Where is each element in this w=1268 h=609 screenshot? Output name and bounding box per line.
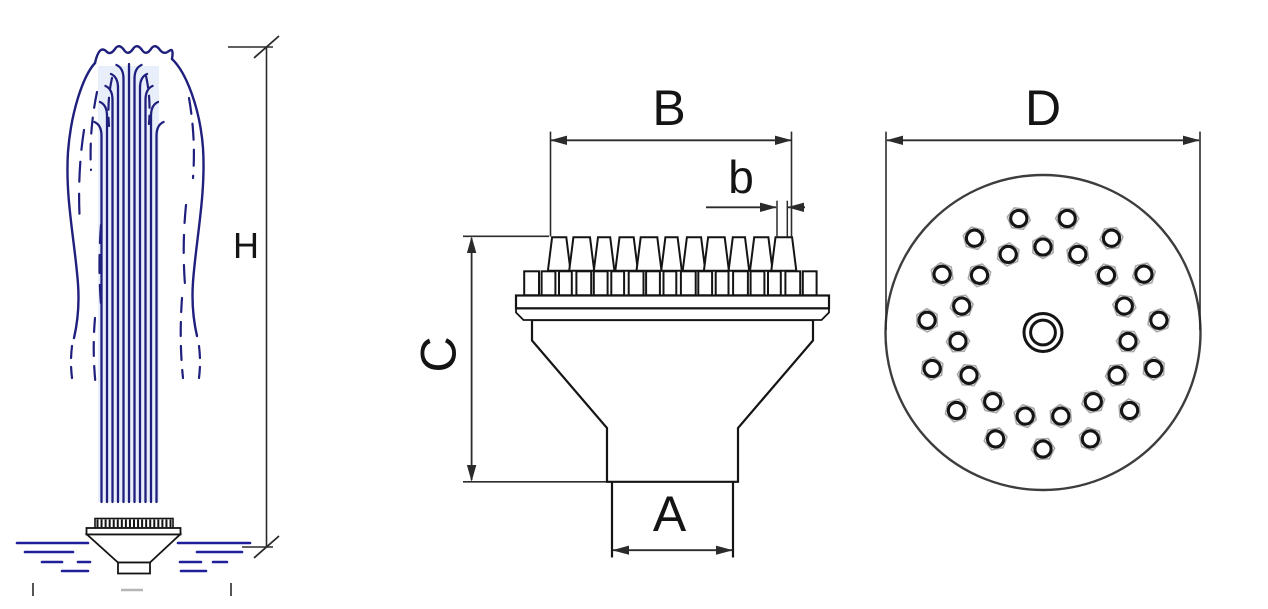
plan-nozzle-hole bbox=[1035, 441, 1051, 457]
plan-nozzle-hole bbox=[948, 402, 964, 418]
nozzle-tip bbox=[771, 237, 796, 270]
plan-nozzle-hole bbox=[966, 230, 982, 246]
nozzle-side-view: B b C A bbox=[411, 80, 830, 558]
nozzle-tip bbox=[729, 237, 750, 270]
dim-B: B bbox=[550, 80, 792, 237]
center-hole bbox=[1024, 314, 1062, 352]
technical-drawing: H B b bbox=[0, 0, 1268, 609]
dim-label-c: C bbox=[411, 336, 467, 372]
technical-drawing-canvas: H B b bbox=[0, 0, 1268, 609]
nozzle-tip bbox=[594, 237, 615, 270]
dim-label-h: H bbox=[233, 225, 259, 266]
nozzle-tip bbox=[569, 237, 594, 270]
plan-nozzle-hole bbox=[1122, 402, 1138, 418]
plan-nozzle-hole bbox=[1151, 312, 1167, 328]
nut-rect bbox=[542, 271, 556, 295]
plan-nozzle-hole bbox=[1103, 230, 1119, 246]
fountain-flange bbox=[87, 528, 181, 535]
dim-label-d: D bbox=[1025, 80, 1061, 136]
dim-label-b-upper: B bbox=[652, 80, 685, 136]
nozzle-tip bbox=[637, 237, 662, 270]
plan-nozzle-hole bbox=[1146, 360, 1162, 376]
jet-line bbox=[157, 122, 164, 502]
nut-rect bbox=[559, 271, 572, 295]
spray-envelope-left bbox=[67, 63, 95, 338]
funnel-body bbox=[532, 320, 813, 482]
nozzle-tip bbox=[704, 237, 729, 270]
dim-A: A bbox=[612, 486, 733, 555]
basin-edge-ticks bbox=[33, 583, 231, 596]
nut-rect bbox=[646, 271, 660, 295]
dim-label-a: A bbox=[653, 486, 687, 542]
nut-rect bbox=[629, 271, 644, 295]
nut-rect bbox=[716, 271, 729, 295]
nozzle-plan-view: D bbox=[886, 80, 1201, 490]
dim-H: H bbox=[228, 36, 279, 558]
spray-crest-wave bbox=[95, 46, 173, 63]
nut-rect bbox=[594, 271, 608, 295]
plan-nozzle-hole bbox=[988, 431, 1004, 447]
nozzle-tip bbox=[683, 237, 706, 270]
nozzle-tip bbox=[750, 237, 773, 270]
plan-nozzle-hole bbox=[1059, 210, 1075, 226]
plan-nozzle-hole bbox=[1098, 267, 1114, 283]
nozzle-tip bbox=[661, 237, 682, 270]
nut-rect bbox=[803, 271, 817, 295]
spray-envelope-right bbox=[172, 59, 204, 336]
dim-label-b-lower: b bbox=[728, 151, 754, 203]
fountain-nozzle-unit bbox=[87, 519, 181, 574]
plan-nozzle-hole bbox=[950, 333, 966, 349]
nut-rect bbox=[733, 271, 748, 295]
plan-nozzle-hole bbox=[1085, 394, 1101, 410]
nut-rect bbox=[751, 271, 765, 295]
flange-plate bbox=[516, 296, 829, 309]
plan-nozzle-hole bbox=[954, 298, 970, 314]
fountain-pipe bbox=[118, 563, 150, 574]
plan-nozzle-hole bbox=[1109, 367, 1125, 383]
nozzle-tip bbox=[615, 237, 638, 270]
plan-nozzle-hole bbox=[985, 394, 1001, 410]
flange-chamfer-strip bbox=[516, 308, 829, 320]
plan-nozzle-hole bbox=[934, 266, 950, 282]
fountain-funnel bbox=[87, 535, 180, 563]
nut-rect bbox=[664, 271, 677, 295]
plan-nozzle-hole bbox=[1017, 408, 1033, 424]
nut-rect bbox=[768, 271, 781, 295]
plan-nozzle-hole bbox=[971, 267, 987, 283]
plan-nozzle-hole bbox=[1000, 246, 1016, 262]
plan-nozzle-hole bbox=[1053, 408, 1069, 424]
nozzle-tip-row bbox=[548, 237, 796, 270]
nut-rect bbox=[681, 271, 696, 295]
plan-nozzle-hole bbox=[1011, 210, 1027, 226]
dim-b: b bbox=[706, 151, 805, 237]
plan-nozzle-hole bbox=[1120, 333, 1136, 349]
nut-rect bbox=[524, 271, 539, 295]
plan-nozzle-hole bbox=[1082, 431, 1098, 447]
plan-nozzle-hole bbox=[1136, 266, 1152, 282]
plan-nozzle-hole bbox=[919, 312, 935, 328]
plan-nozzle-hole bbox=[1035, 239, 1051, 255]
nut-rect bbox=[611, 271, 624, 295]
plan-nozzle-hole bbox=[1116, 298, 1132, 314]
nut-row bbox=[524, 271, 816, 295]
plan-nozzle-hole bbox=[1070, 246, 1086, 262]
plan-nozzle-hole bbox=[961, 367, 977, 383]
nut-rect bbox=[785, 271, 800, 295]
nozzle-tip bbox=[548, 237, 571, 270]
nut-rect bbox=[576, 271, 591, 295]
fountain-spray-view: H bbox=[17, 36, 279, 596]
nut-rect bbox=[698, 271, 712, 295]
plan-nozzle-hole bbox=[924, 360, 940, 376]
